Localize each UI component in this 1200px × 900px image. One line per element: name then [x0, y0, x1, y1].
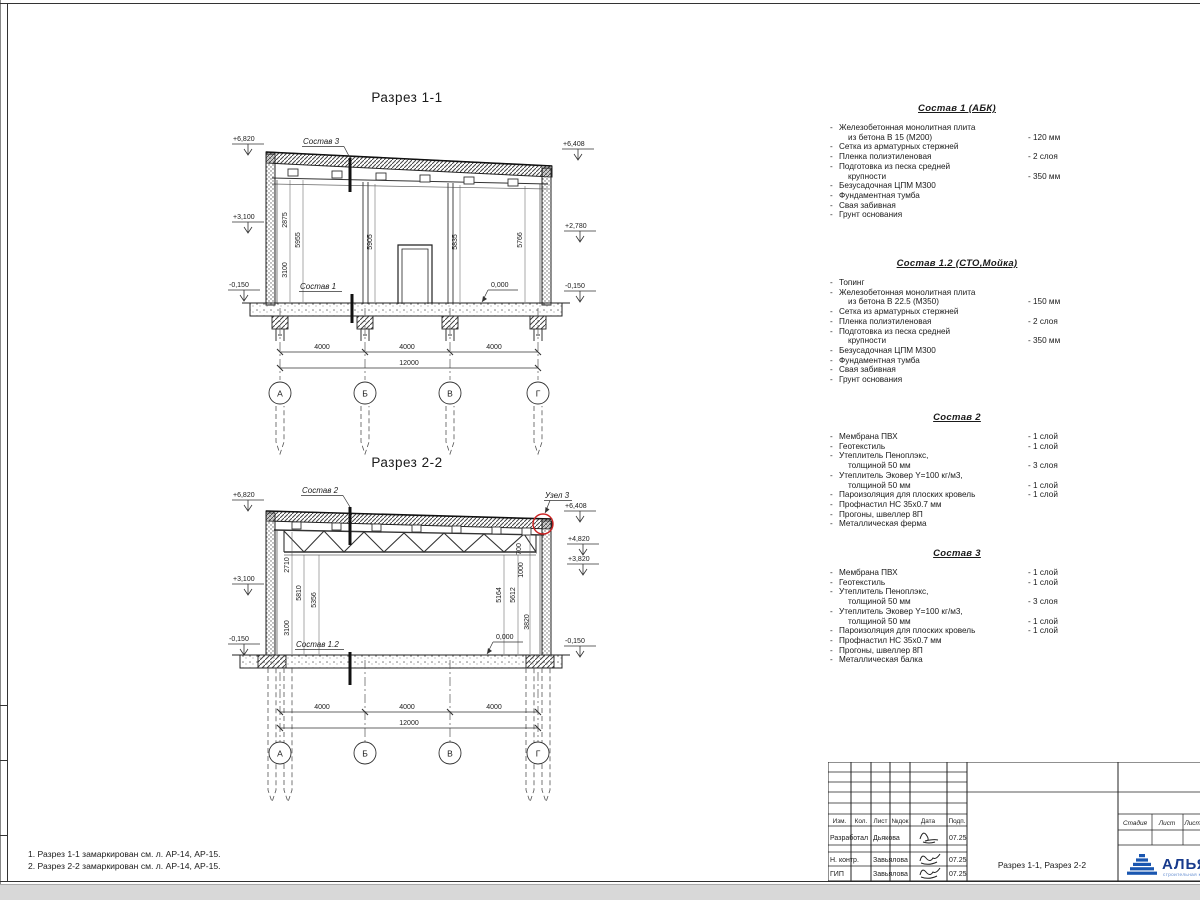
row-razrabotal-role: Разработал — [830, 834, 868, 842]
col-izm: Изм. — [833, 818, 847, 825]
vdim-5164: 5164 — [496, 587, 503, 603]
axis-b: Б — [362, 749, 368, 759]
col-stadiya: Стадия — [1123, 819, 1148, 827]
composition-item: -Грунт основания — [828, 210, 1086, 220]
vdim-700: 700 — [516, 543, 523, 555]
vdim-2710: 2710 — [284, 557, 291, 573]
elev-left-bottom: -0,150 — [229, 636, 249, 643]
axis-a: А — [277, 749, 283, 759]
label-sostav-3: Состав 3 — [303, 137, 340, 146]
elev-right-top: +6,408 — [565, 503, 587, 510]
pile-cap-right — [526, 655, 554, 668]
vdim-5835: 5835 — [452, 234, 459, 250]
dim-12000: 12000 — [399, 720, 419, 727]
col-listov: Листов — [1183, 820, 1200, 827]
door-opening — [398, 245, 432, 304]
composition-item: -Геотекстиль- 1 слой — [828, 442, 1086, 452]
section-2-2-drawing: Разрез 2-2 — [220, 450, 630, 830]
composition-item: -Сетка из арматурных стержней — [828, 142, 1086, 152]
dim-4000-3: 4000 — [486, 344, 502, 351]
composition-item: -Металлическая ферма — [828, 519, 1086, 529]
vdim-2875: 2875 — [282, 212, 289, 228]
dim-4000-2: 4000 — [399, 344, 415, 351]
elev-right-2: +4,820 — [568, 536, 590, 543]
composition-item: -Пароизоляция для плоских кровель- 1 сло… — [828, 490, 1086, 500]
composition-item: -Утеплитель Эковер Y=100 кг/м3, — [828, 607, 1086, 617]
composition-item: -Металлическая балка — [828, 655, 1086, 665]
composition-item: -Профнастил НС 35х0.7 мм — [828, 500, 1086, 510]
composition-item: -Подготовка из песка средней — [828, 162, 1086, 172]
composition-item: -Утеплитель Эковер Y=100 кг/м3, — [828, 471, 1086, 481]
floor-slab — [240, 655, 562, 668]
section-1-title: Разрез 1-1 — [371, 90, 442, 105]
composition-item: -Безусадочная ЦПМ М300 — [828, 346, 1086, 356]
composition-item: -Топинг — [828, 278, 1086, 288]
sheet-outer-edge-left — [0, 0, 1, 884]
row-gip-date: 07.25 — [949, 871, 967, 878]
vdim-5905: 5905 — [367, 234, 374, 250]
axis-v: В — [447, 389, 453, 399]
composition-item: -Свая забивная — [828, 201, 1086, 211]
vdim-3100: 3100 — [284, 620, 291, 636]
composition-list-4: Состав 3 -Мембрана ПВХ- 1 слой-Геотексти… — [828, 548, 1086, 665]
composition-item: -Прогоны, швеллер 8П — [828, 646, 1086, 656]
composition-item: из бетона В 15 (М200)- 120 мм — [828, 133, 1086, 143]
composition-item: -Безусадочная ЦПМ М300 — [828, 181, 1086, 191]
row-nkontr-role: Н. контр. — [830, 857, 859, 864]
vdim-5955: 5955 — [295, 232, 302, 248]
label-zero: 0,000 — [491, 282, 509, 289]
sheet-frame-top — [0, 3, 1200, 4]
vdim-5612: 5612 — [510, 587, 517, 603]
axis-b: Б — [362, 389, 368, 399]
composition-rows: -Железобетонная монолитная плитаиз бетон… — [828, 123, 1086, 220]
composition-item: -Утеплитель Пеноплэкс, — [828, 451, 1086, 461]
piles-dashed — [268, 668, 550, 802]
section-2-title: Разрез 2-2 — [371, 455, 442, 470]
col-kol: Кол. — [855, 818, 868, 825]
composition-item: -Грунт основания — [828, 375, 1086, 385]
right-wall — [542, 168, 551, 305]
composition-item: -Пленка полиэтиленовая- 2 слоя — [828, 152, 1086, 162]
row-gip-role: ГИП — [830, 871, 844, 878]
elev-left-top: +6,820 — [233, 492, 255, 499]
axis-lines — [280, 660, 538, 742]
composition-item: -Свая забивная — [828, 365, 1086, 375]
composition-item: -Геотекстиль- 1 слой — [828, 578, 1086, 588]
axis-g: Г — [536, 389, 541, 399]
axis-bubbles: А Б В Г — [269, 742, 549, 764]
note-2: 2. Разрез 2-2 замаркирован см. л. АР-14,… — [28, 861, 221, 873]
logo-triangle-icon — [1127, 854, 1157, 875]
composition-list-2: Состав 1.2 (СТО,Мойка) -Топинг-Железобет… — [828, 258, 1086, 385]
composition-item: -Мембрана ПВХ- 1 слой — [828, 568, 1086, 578]
floor-slab — [250, 303, 562, 316]
section-1-1-drawing: Разрез 1-1 — [220, 80, 630, 460]
composition-item: -Фундаментная тумба — [828, 191, 1086, 201]
vdim-3820: 3820 — [524, 614, 531, 630]
right-wall — [542, 521, 551, 655]
composition-item: толщиной 50 мм- 1 слой — [828, 481, 1086, 491]
roof-slab — [266, 511, 552, 529]
composition-item: -Фундаментная тумба — [828, 356, 1086, 366]
elev-left-mid: +3,100 — [233, 576, 255, 583]
axis-bubbles: А Б В Г — [269, 382, 549, 404]
composition-item: из бетона В 22.5 (М350)- 150 мм — [828, 297, 1086, 307]
composition-title: Состав 1 (АБК) — [828, 103, 1086, 114]
elev-right-mid: +2,780 — [565, 223, 587, 230]
composition-item: крупности- 350 мм — [828, 172, 1086, 182]
label-sostav-2: Состав 2 — [302, 486, 339, 495]
composition-item: -Мембрана ПВХ- 1 слой — [828, 432, 1086, 442]
composition-title: Состав 2 — [828, 412, 1086, 423]
piles-dashed — [276, 406, 542, 454]
composition-item: -Пароизоляция для плоских кровель- 1 сло… — [828, 626, 1086, 636]
title-block: Изм. Кол. Лист №док Подп. Дата Разработа… — [828, 762, 1200, 882]
pile-caps — [272, 316, 546, 341]
elev-right-top: +6,408 — [563, 141, 585, 148]
col-list2: Лист — [1158, 820, 1176, 827]
frame-tick-2 — [0, 760, 8, 761]
composition-title: Состав 3 — [828, 548, 1086, 559]
composition-list-1: Состав 1 (АБК) -Железобетонная монолитна… — [828, 103, 1086, 220]
frame-tick-1 — [0, 705, 8, 706]
signatures — [920, 833, 940, 878]
composition-item: -Сетка из арматурных стержней — [828, 307, 1086, 317]
composition-item: толщиной 50 мм- 1 слой — [828, 617, 1086, 627]
logo-subtext: строительная компания — [1163, 872, 1200, 877]
composition-item: -Подготовка из песка средней — [828, 327, 1086, 337]
composition-rows: -Мембрана ПВХ- 1 слой-Геотекстиль- 1 сло… — [828, 432, 1086, 529]
vertical-dims: 2710 5810 5356 3100 700 1000 5164 5612 3… — [284, 532, 531, 654]
drawing-sheet: Разрез 1-1 — [0, 0, 1200, 900]
composition-title: Состав 1.2 (СТО,Мойка) — [828, 258, 1086, 269]
composition-item: -Профнастил НС 35х0.7 мм — [828, 636, 1086, 646]
dim-4000-3: 4000 — [486, 704, 502, 711]
composition-rows: -Топинг-Железобетонная монолитная плитаи… — [828, 278, 1086, 385]
dim-4000-1: 4000 — [314, 344, 330, 351]
label-node-3: Узел 3 — [544, 491, 570, 500]
composition-item: крупности- 350 мм — [828, 336, 1086, 346]
vdim-1000: 1000 — [518, 562, 525, 578]
col-podp: Подп. — [949, 818, 966, 825]
left-wall — [266, 154, 275, 305]
elev-right-bottom: -0,150 — [565, 283, 585, 290]
logo-text: АЛЬЯНС — [1162, 856, 1200, 873]
elev-right-3: +3,820 — [568, 556, 590, 563]
vdim-5356: 5356 — [311, 592, 318, 608]
axis-v: В — [447, 749, 453, 759]
composition-item: -Утеплитель Пеноплэкс, — [828, 587, 1086, 597]
elev-left-mid: +3,100 — [233, 214, 255, 221]
dim-4000-2: 4000 — [399, 704, 415, 711]
vdim-5810: 5810 — [296, 585, 303, 601]
composition-item: толщиной 50 мм- 3 слоя — [828, 597, 1086, 607]
composition-item: -Железобетонная монолитная плита — [828, 288, 1086, 298]
col-ndok: №док — [892, 818, 909, 825]
left-wall — [266, 513, 275, 655]
composition-list-3: Состав 2 -Мембрана ПВХ- 1 слой-Геотексти… — [828, 412, 1086, 529]
sheet-frame-left — [7, 3, 8, 882]
pile-cap-left — [258, 655, 286, 668]
composition-item: толщиной 50 мм- 3 слоя — [828, 461, 1086, 471]
vdim-3100: 3100 — [282, 262, 289, 278]
col-data: Дата — [921, 818, 936, 825]
desktop-strip — [0, 884, 1200, 900]
axis-g: Г — [536, 749, 541, 759]
axis-a: А — [277, 389, 283, 399]
dim-4000-1: 4000 — [314, 704, 330, 711]
frame-tick-3 — [0, 835, 8, 836]
col-list: Лист — [874, 818, 888, 825]
row-gip-name: Завьялова — [873, 871, 908, 878]
elev-left-top: +6,820 — [233, 136, 255, 143]
composition-rows: -Мембрана ПВХ- 1 слой-Геотекстиль- 1 сло… — [828, 568, 1086, 665]
row-razrabotal-date: 07.25 — [949, 835, 967, 842]
row-nkontr-date: 07.25 — [949, 857, 967, 864]
composition-item: -Прогоны, швеллер 8П — [828, 510, 1086, 520]
company-logo: АЛЬЯНС строительная компания — [1127, 854, 1200, 877]
notes-block: 1. Разрез 1-1 замаркирован см. л. АР-14,… — [28, 849, 221, 872]
elev-left-bottom: -0,150 — [229, 282, 249, 289]
doc-title: Разрез 1-1, Разрез 2-2 — [998, 860, 1086, 870]
vdim-5766: 5766 — [517, 232, 524, 248]
composition-item: -Пленка полиэтиленовая- 2 слоя — [828, 317, 1086, 327]
composition-item: -Железобетонная монолитная плита — [828, 123, 1086, 133]
row-nkontr-name: Завьялова — [873, 857, 908, 864]
label-zero: 0,000 — [496, 634, 514, 641]
note-1: 1. Разрез 1-1 замаркирован см. л. АР-14,… — [28, 849, 221, 861]
dim-12000: 12000 — [399, 360, 419, 367]
elev-right-bottom: -0,150 — [565, 638, 585, 645]
row-razrabotal-name: Дьякова — [873, 835, 900, 842]
label-sostav-12: Состав 1.2 — [296, 640, 339, 649]
label-sostav-1: Состав 1 — [300, 282, 336, 291]
